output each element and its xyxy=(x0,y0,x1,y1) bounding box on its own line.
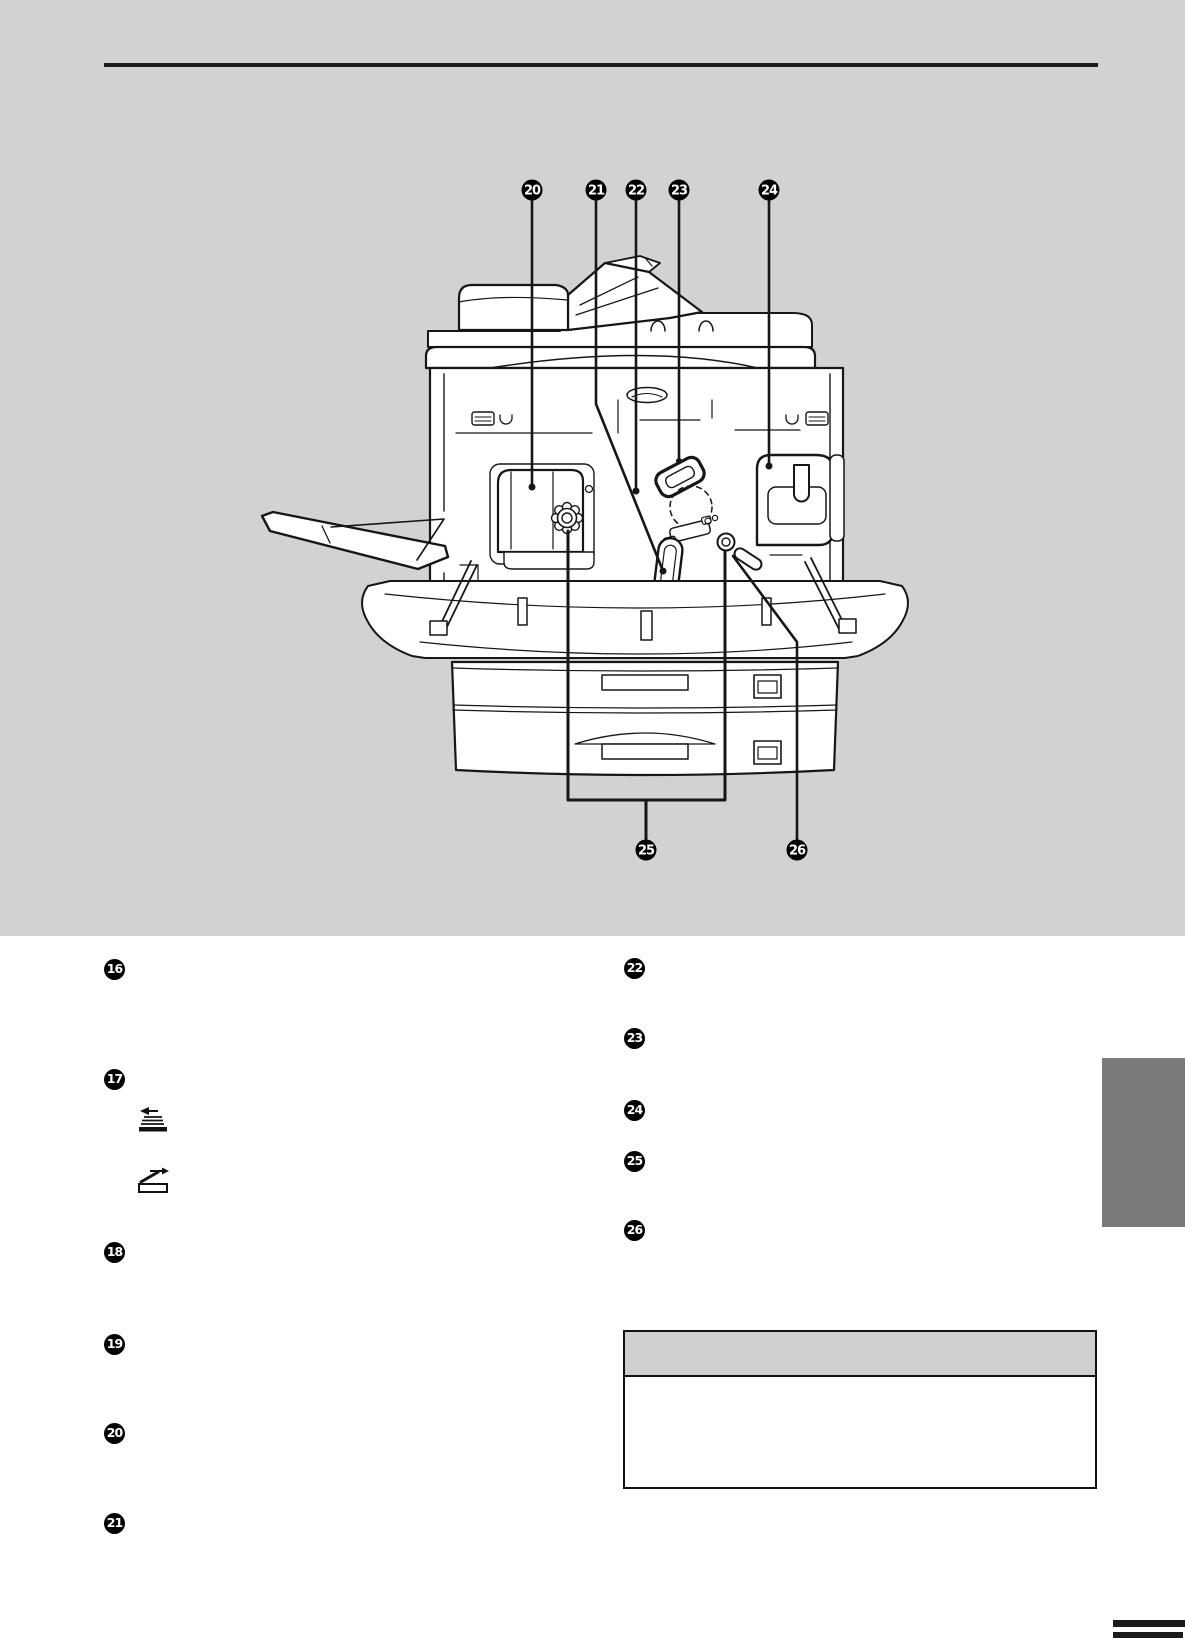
drawer-handle-2 xyxy=(602,744,688,759)
bypass-tray xyxy=(262,512,448,569)
right-guide-channel xyxy=(830,455,844,541)
list-badge-25: 25 xyxy=(624,1151,645,1172)
cover-latch-left xyxy=(472,412,494,425)
list-badge-26: 26 xyxy=(624,1220,645,1241)
list-badge-19: 19 xyxy=(104,1334,125,1355)
roller-rotating-knob xyxy=(718,534,735,551)
list-badge-22: 22 xyxy=(624,958,645,979)
chapter-side-tab xyxy=(1102,1058,1185,1227)
list-badge-20: 20 xyxy=(104,1423,125,1444)
callout-badge-21: 21 xyxy=(586,180,607,201)
list-badge-18: 18 xyxy=(104,1242,125,1263)
svg-text:22: 22 xyxy=(628,184,644,199)
callout-badge-25: 25 xyxy=(636,840,657,861)
callout-badge-22: 22 xyxy=(626,180,647,201)
list-badge-16: 16 xyxy=(104,959,125,980)
drawer-latch-1 xyxy=(754,675,781,698)
front-top-band xyxy=(426,347,815,368)
callout-badge-26: 26 xyxy=(787,840,808,861)
callout-badge-20: 20 xyxy=(522,180,543,201)
face-up-exit-icon xyxy=(138,1106,170,1132)
footer-index-mark-2 xyxy=(1113,1632,1183,1638)
drawer-latch-2 xyxy=(754,741,781,764)
note-box-header xyxy=(625,1332,1095,1377)
svg-text:24: 24 xyxy=(761,184,778,199)
callout-badge-23: 23 xyxy=(669,180,690,201)
svg-text:20: 20 xyxy=(524,184,541,199)
adf-cover xyxy=(459,285,568,330)
svg-text:23: 23 xyxy=(671,184,688,199)
list-badge-24: 24 xyxy=(624,1100,645,1121)
callout-badge-24: 24 xyxy=(759,180,780,201)
footer-index-mark-1 xyxy=(1113,1620,1185,1627)
paper-drawer-cabinet xyxy=(452,662,838,775)
drawer-handle-1 xyxy=(602,675,688,690)
svg-text:26: 26 xyxy=(789,844,806,859)
svg-text:21: 21 xyxy=(588,184,605,199)
original-on-glass-icon xyxy=(136,1160,170,1194)
list-badge-17: 17 xyxy=(104,1069,125,1090)
toner-knob xyxy=(552,503,583,534)
list-badge-21: 21 xyxy=(104,1513,125,1534)
cover-grip-handle xyxy=(627,388,667,403)
svg-text:25: 25 xyxy=(638,844,655,859)
note-box xyxy=(623,1330,1097,1489)
list-badge-23: 23 xyxy=(624,1028,645,1049)
note-box-body xyxy=(625,1377,1095,1532)
cover-latch-right xyxy=(806,412,828,425)
manual-page: 20 21 22 23 24 25 26 16 17 18 19 20 21 2… xyxy=(0,0,1185,1638)
